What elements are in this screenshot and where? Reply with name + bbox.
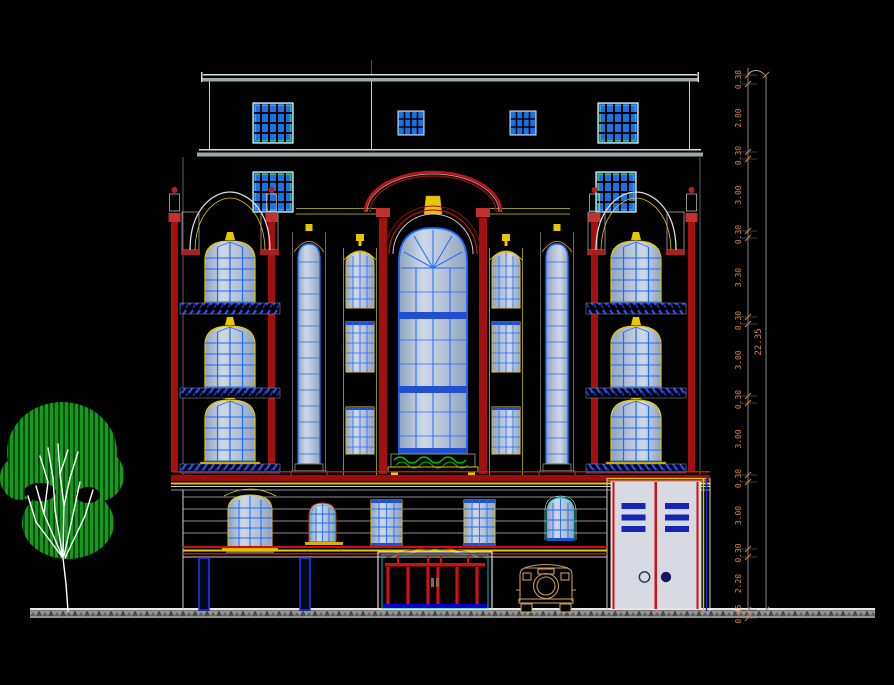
garage-door xyxy=(607,478,710,611)
dimension-label: 0.30 xyxy=(734,311,743,330)
dimension-label: 3.00 xyxy=(734,350,743,369)
dimension-label: 2.20 xyxy=(734,574,743,593)
dimension-label: 3.00 xyxy=(734,185,743,204)
central-window xyxy=(399,228,467,462)
pilotis-column xyxy=(300,558,310,610)
elevation-drawing-canvas: 0.38 2.80 0.30 3.00 0.30 3.30 0.30 3.00 … xyxy=(0,0,894,685)
dimension-label: 0.30 xyxy=(734,225,743,244)
dimension-label: 0.30 xyxy=(734,146,743,165)
dimension-total: 22.35 xyxy=(754,328,764,355)
attic-window xyxy=(253,103,293,143)
stacked-windows-right xyxy=(490,234,523,478)
dimension-label: 0.30 xyxy=(734,469,743,488)
dimension-label: 0.38 xyxy=(734,70,743,89)
dimension-label: 3.30 xyxy=(734,268,743,287)
attic-window xyxy=(598,103,638,143)
pilotis-column xyxy=(199,558,209,610)
cad-viewport: 0.38 2.80 0.30 3.00 0.30 3.30 0.30 3.00 … xyxy=(0,0,894,685)
stacked-windows-left xyxy=(344,234,377,478)
dimension-label: 3.00 xyxy=(734,506,743,525)
attic-window xyxy=(510,111,536,135)
attic-window xyxy=(398,111,424,135)
dimension-label: 0.30 xyxy=(734,390,743,409)
ground-window-grid-1 xyxy=(371,500,402,546)
dimension-label: 2.80 xyxy=(734,108,743,127)
ground-window-grid-2 xyxy=(464,500,495,546)
door-handle-right xyxy=(661,572,671,582)
dimension-label: 0.30 xyxy=(734,543,743,562)
dimension-label: 0.45 xyxy=(734,604,743,623)
dimension-label: 3.00 xyxy=(734,429,743,448)
ground-window-cyan-arched xyxy=(545,496,576,541)
